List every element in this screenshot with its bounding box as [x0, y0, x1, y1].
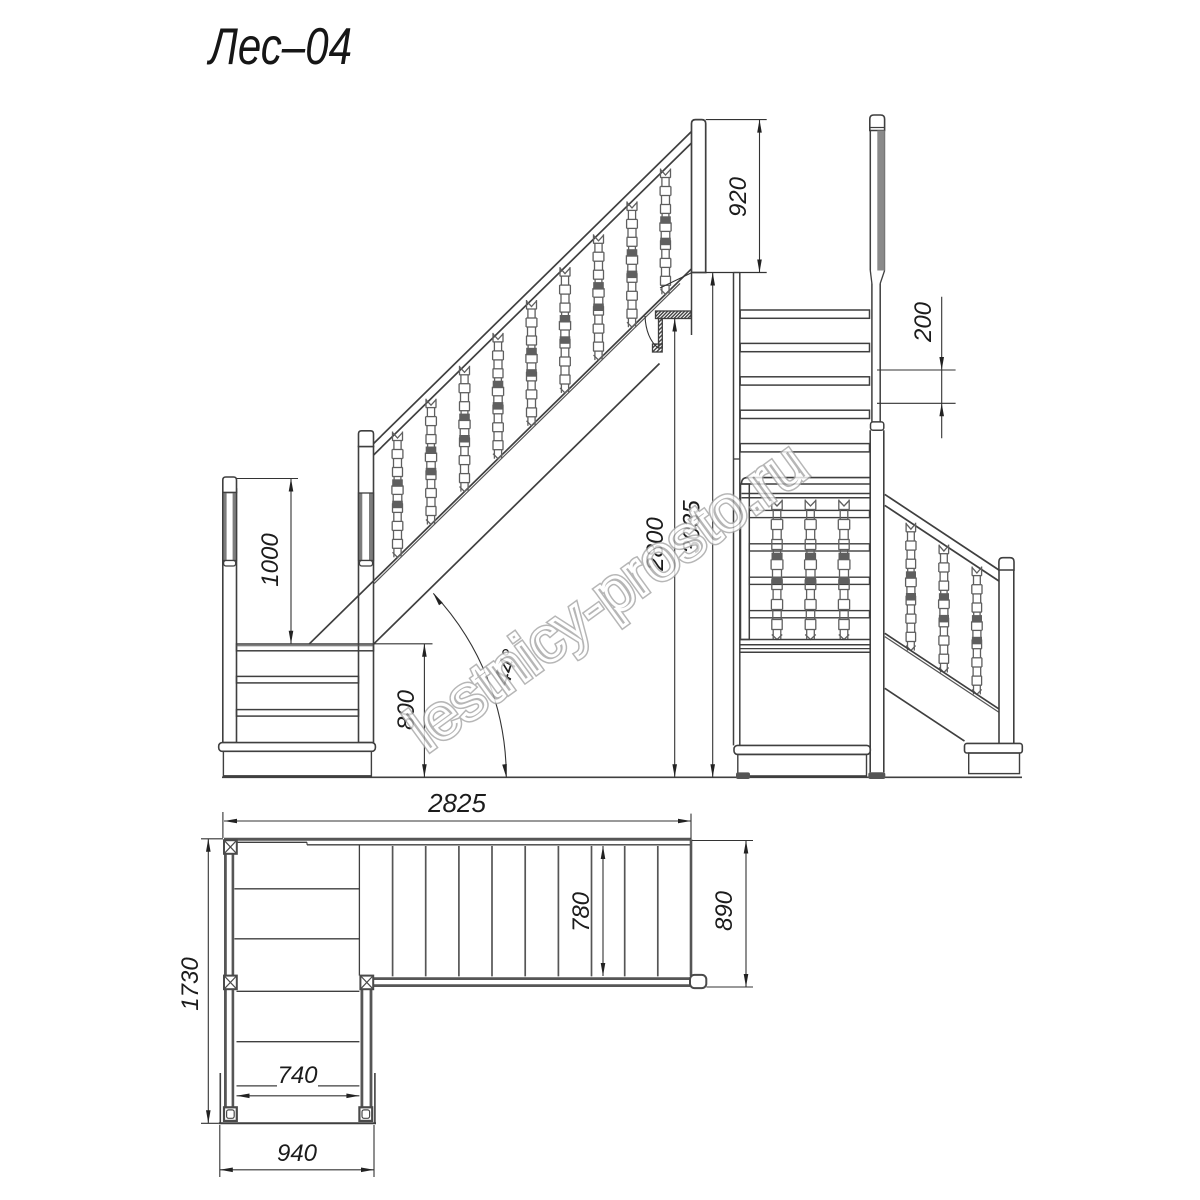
svg-text:740: 740 [277, 1062, 318, 1089]
svg-text:1000: 1000 [257, 533, 284, 587]
svg-text:940: 940 [277, 1140, 318, 1167]
svg-text:2825: 2825 [427, 788, 486, 818]
svg-text:Лес–04: Лес–04 [207, 18, 352, 76]
svg-text:1730: 1730 [177, 957, 204, 1011]
svg-text:890: 890 [711, 890, 738, 931]
svg-text:780: 780 [568, 891, 595, 932]
svg-text:200: 200 [910, 301, 937, 343]
svg-text:920: 920 [725, 176, 752, 217]
